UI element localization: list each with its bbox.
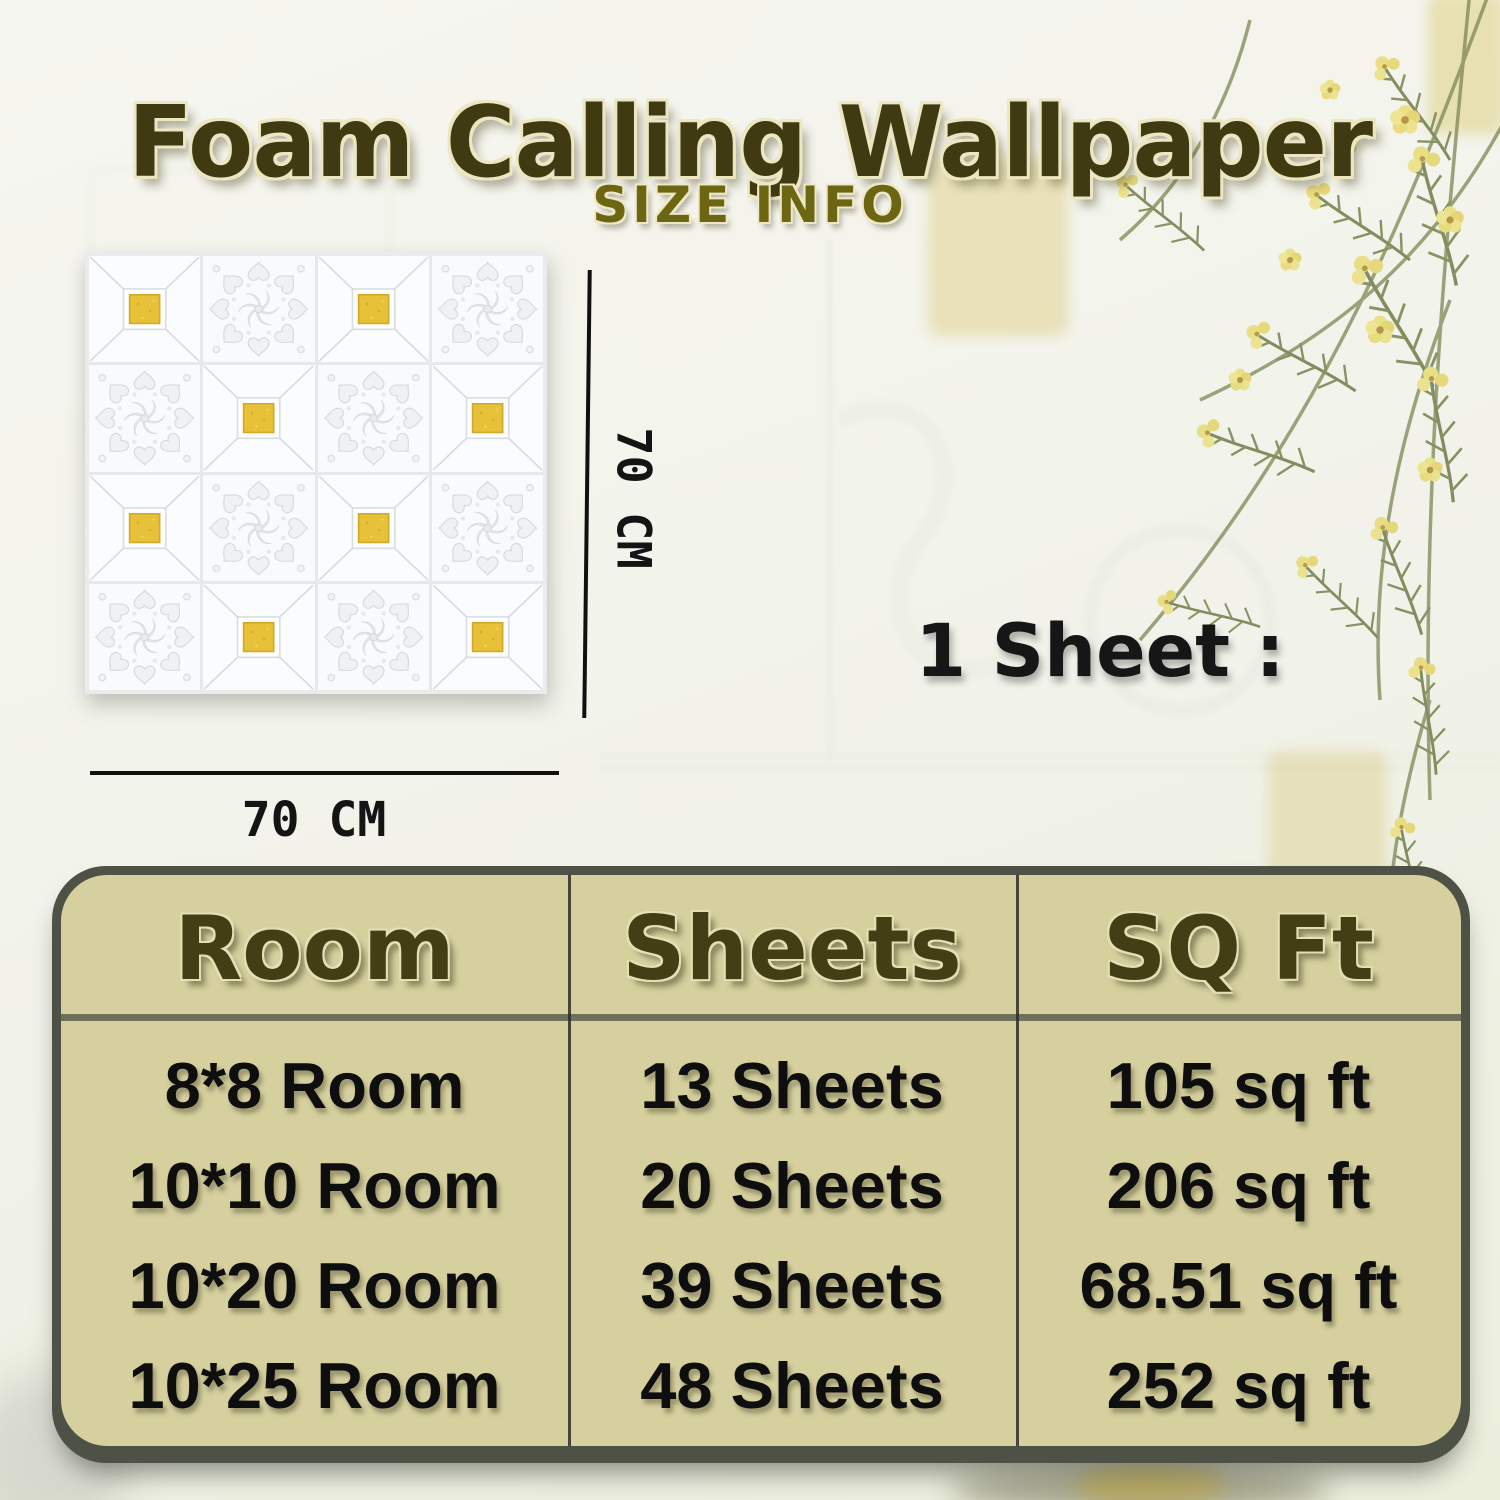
table-header-row: Room Sheets SQ Ft bbox=[61, 875, 1461, 1014]
wallpaper-tile-gold bbox=[432, 365, 543, 471]
header-room: Room bbox=[61, 889, 568, 1000]
header-separator bbox=[61, 1014, 1461, 1021]
size-table-surface: Room Sheets SQ Ft 8*8 Room 13 Sheets 105… bbox=[61, 875, 1461, 1446]
wallpaper-tile-gold bbox=[89, 256, 200, 362]
wallpaper-tile-gold bbox=[203, 584, 314, 690]
wallpaper-tile-floral bbox=[203, 256, 314, 362]
table-body: 8*8 Room 13 Sheets 105 sq ft 10*10 Room … bbox=[61, 1021, 1461, 1446]
product-panel-image bbox=[85, 252, 547, 694]
column-divider bbox=[1016, 875, 1019, 1446]
wallpaper-tile-floral bbox=[203, 475, 314, 581]
cell-sqft: 206 sq ft bbox=[1016, 1148, 1461, 1223]
wallpaper-tile-gold bbox=[318, 475, 429, 581]
subtitle: SIZE INFO bbox=[0, 176, 1500, 234]
wallpaper-tile-gold bbox=[89, 475, 200, 581]
cell-sqft: 252 sq ft bbox=[1016, 1348, 1461, 1423]
wallpaper-tile-floral bbox=[318, 365, 429, 471]
wallpaper-tile-floral bbox=[432, 475, 543, 581]
cell-room: 10*10 Room bbox=[61, 1148, 568, 1223]
cell-room: 10*25 Room bbox=[61, 1348, 568, 1423]
horizontal-dimension-line bbox=[90, 771, 559, 775]
cell-room: 8*8 Room bbox=[61, 1048, 568, 1123]
wallpaper-tile-gold bbox=[432, 584, 543, 690]
sheet-size-line-1: 1 Sheet : bbox=[795, 598, 1405, 706]
wallpaper-tile-gold bbox=[203, 365, 314, 471]
header-sqft: SQ Ft bbox=[1016, 889, 1461, 1000]
header-sheets: Sheets bbox=[568, 889, 1016, 1000]
cell-sheets: 39 Sheets bbox=[568, 1248, 1016, 1323]
column-divider bbox=[568, 875, 571, 1446]
infographic-root: Foam Calling Wallpaper SIZE INFO bbox=[0, 0, 1500, 1500]
table-row: 8*8 Room 13 Sheets 105 sq ft bbox=[61, 1035, 1461, 1135]
horizontal-dimension-label: 70 CM bbox=[242, 792, 387, 848]
wallpaper-tile-floral bbox=[432, 256, 543, 362]
cell-room: 10*20 Room bbox=[61, 1248, 568, 1323]
cell-sheets: 48 Sheets bbox=[568, 1348, 1016, 1423]
cell-sheets: 13 Sheets bbox=[568, 1048, 1016, 1123]
cell-sheets: 20 Sheets bbox=[568, 1148, 1016, 1223]
vertical-dimension-label: 70 CM bbox=[606, 427, 661, 568]
wallpaper-tile-floral bbox=[89, 584, 200, 690]
tile-grid bbox=[89, 256, 543, 690]
table-row: 10*20 Room 39 Sheets 68.51 sq ft bbox=[61, 1236, 1461, 1336]
cell-sqft: 105 sq ft bbox=[1016, 1048, 1461, 1123]
cell-sqft: 68.51 sq ft bbox=[1016, 1248, 1461, 1323]
wallpaper-tile-gold bbox=[318, 256, 429, 362]
wallpaper-tile-floral bbox=[89, 365, 200, 471]
table-row: 10*25 Room 48 Sheets 252 sq ft bbox=[61, 1336, 1461, 1436]
wallpaper-tile-floral bbox=[318, 584, 429, 690]
size-table: Room Sheets SQ Ft 8*8 Room 13 Sheets 105… bbox=[52, 866, 1470, 1463]
table-row: 10*10 Room 20 Sheets 206 sq ft bbox=[61, 1135, 1461, 1235]
